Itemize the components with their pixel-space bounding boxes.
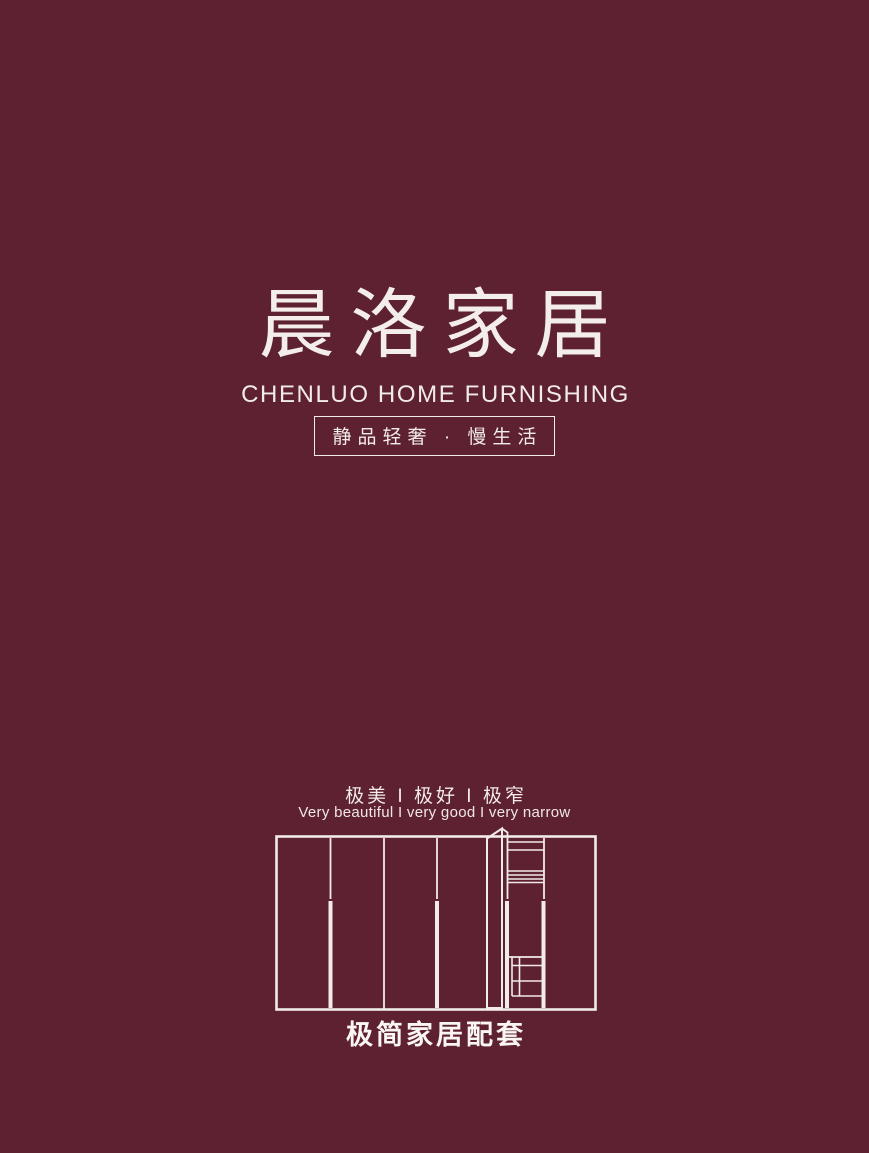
tagline-box: 静品轻奢 · 慢生活 — [314, 416, 556, 456]
tagline-container: 静品轻奢 · 慢生活 — [0, 416, 869, 456]
brand-logo-text: 晨洛家居 — [0, 282, 869, 369]
brand-name-english: CHENLUO HOME FURNISHING — [0, 381, 869, 409]
wardrobe-illustration — [270, 820, 600, 1016]
footer-title: 极简家居配套 — [0, 1013, 869, 1052]
slogan-english: Very beautiful I very good I very narrow — [0, 804, 869, 821]
brand-poster: 晨洛家居 CHENLUO HOME FURNISHING 静品轻奢 · 慢生活 … — [0, 0, 869, 1153]
